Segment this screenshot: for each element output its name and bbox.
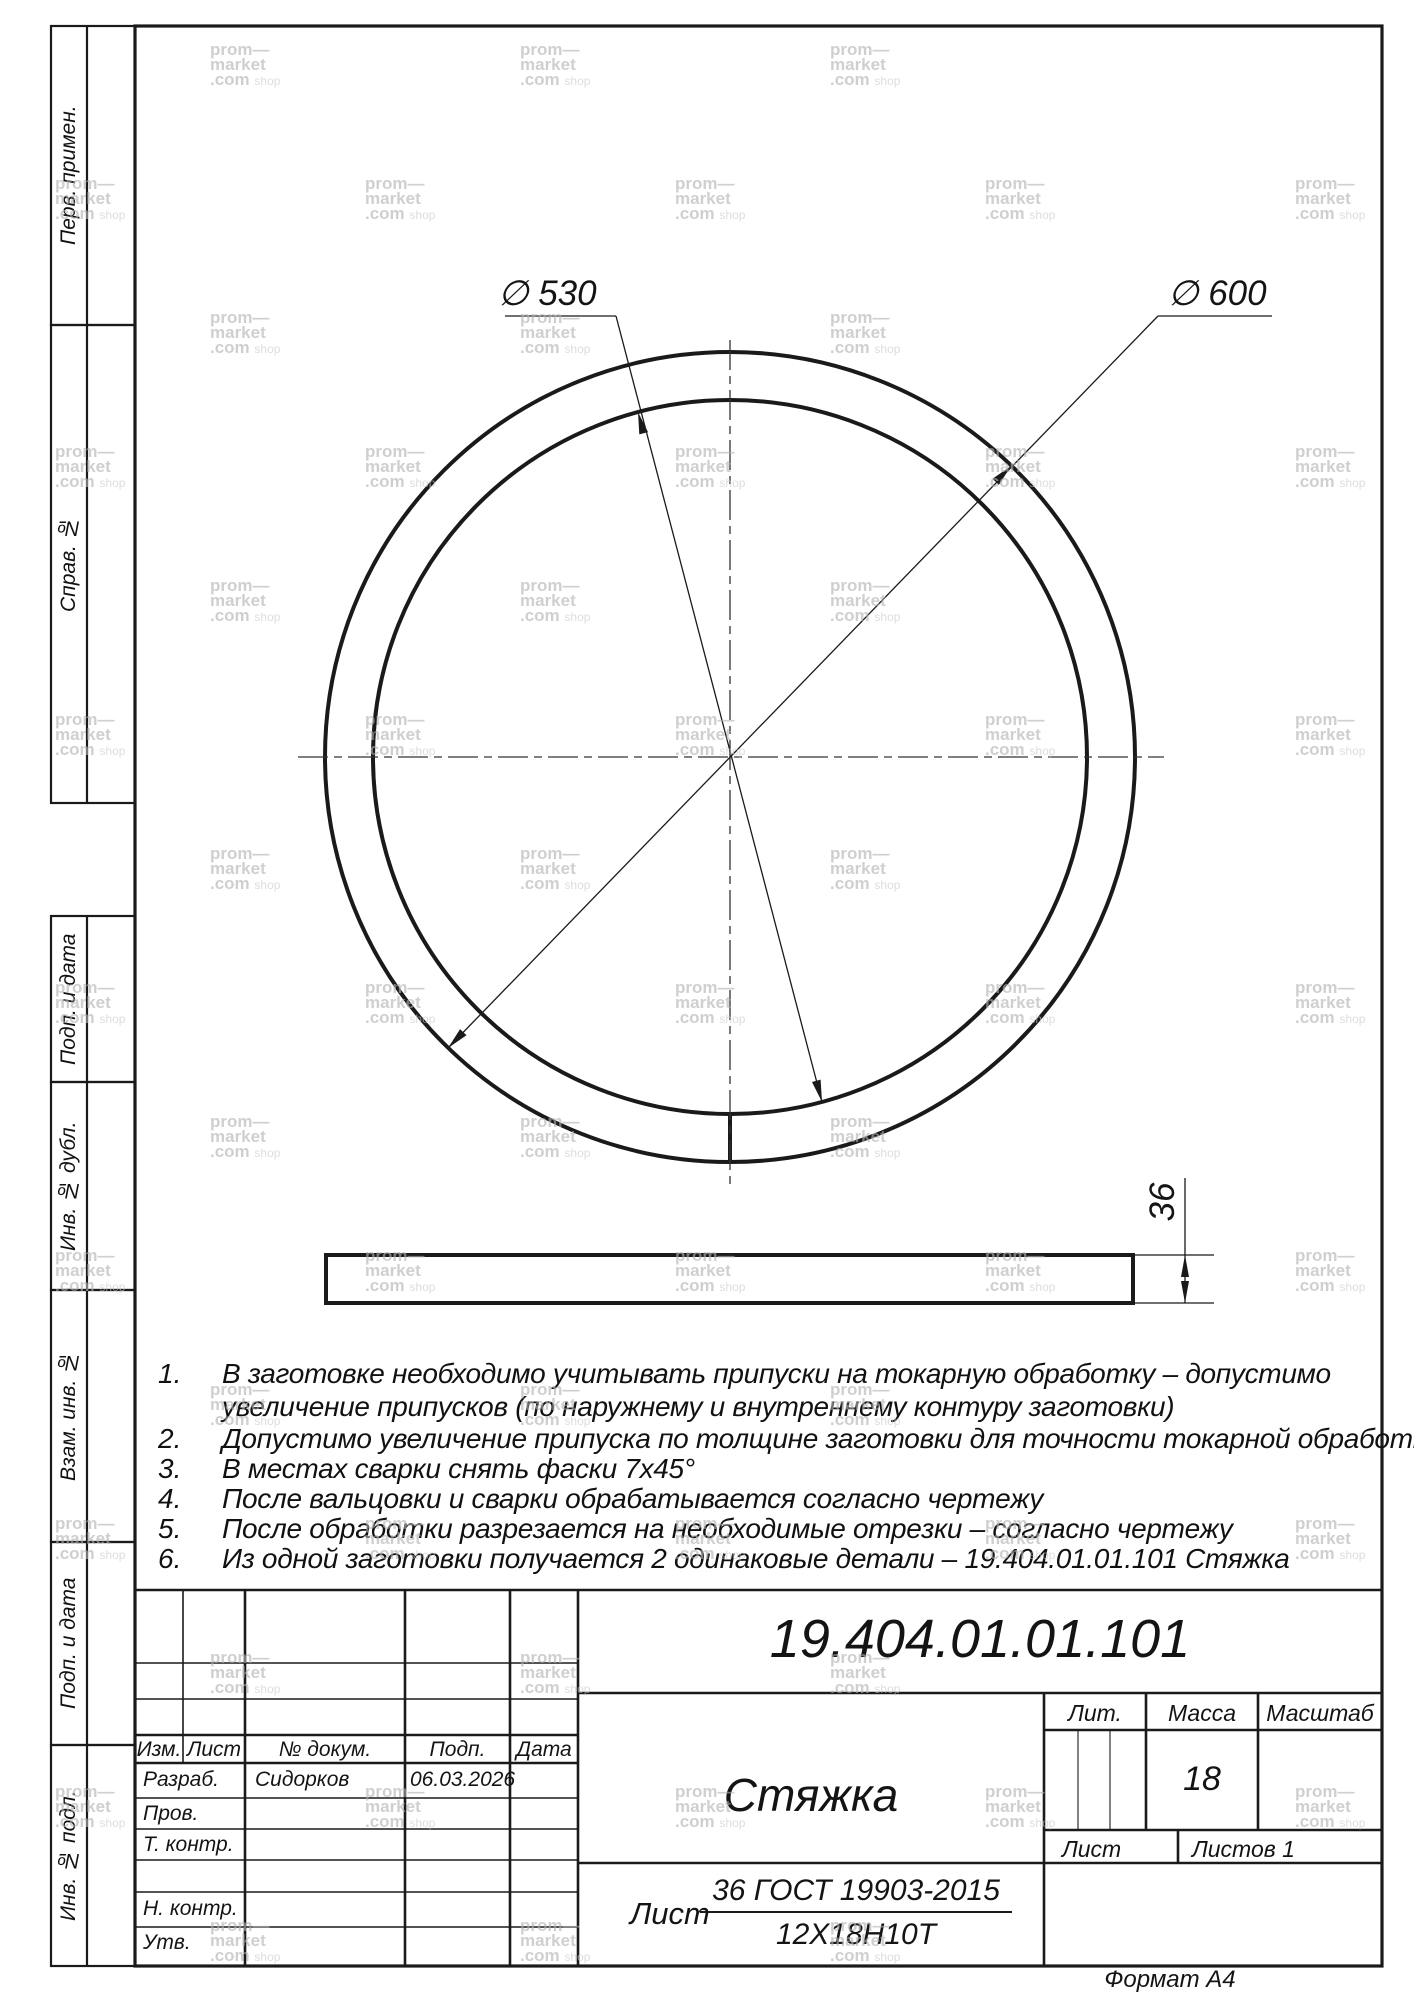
note-line: В заготовке необходимо учитывать припуск… (222, 1358, 1331, 1390)
drawing-sheet: Перв. примен. Справ. № Подп. и дата Инв.… (0, 0, 1414, 2000)
note-line: увеличение припусков (по наружнему и вну… (222, 1391, 1174, 1423)
material-denominator: 12Х18Н10Т (700, 1918, 1012, 1952)
dimension-arrows (448, 412, 1189, 1303)
material-prefix: Лист (630, 1896, 710, 1932)
margin-label-sprav-no: Справ. № (51, 325, 87, 803)
listov-word: Листов (1192, 1836, 1276, 1862)
row-nkontr: Н. контр. (143, 1897, 238, 1921)
note-line: Допустимо увеличение припуска по толщине… (222, 1423, 1414, 1455)
margin-label-vzam-inv: Взам. инв. № (51, 1290, 87, 1542)
note-number: 6. (158, 1543, 208, 1575)
margin-label-inv-dubl: Инв. № дубл. (51, 1082, 87, 1290)
dim-label-36: 36 (1143, 1167, 1183, 1237)
note-number: 5. (158, 1513, 208, 1545)
col-izm: Изм. (135, 1738, 183, 1762)
note-number: 2. (158, 1423, 208, 1455)
row-razrab: Разраб. (143, 1768, 219, 1792)
centerlines (298, 340, 1164, 1186)
note-number: 1. (158, 1358, 208, 1390)
dim-label-530: ∅ 530 (498, 274, 638, 314)
listov-label: Листов 1 (1192, 1836, 1295, 1863)
massa-value: 18 (1146, 1760, 1258, 1799)
massa-label: Масса (1146, 1700, 1258, 1727)
bar-outline (326, 1255, 1133, 1303)
note-line: После обработки разрезается на необходим… (222, 1513, 1233, 1545)
note-line: Из одной заготовки получается 2 одинаков… (222, 1543, 1290, 1575)
lit-label: Лит. (1044, 1700, 1146, 1727)
material-numerator: 36 ГОСТ 19903-2015 (700, 1874, 1012, 1908)
dim-label-600: ∅ 600 (1168, 274, 1308, 314)
margin-label-podp-data-2: Подп. и дата (51, 1542, 87, 1745)
sheet-frame (135, 26, 1382, 1966)
dim-530 (505, 316, 822, 1102)
margin-label-podp-data-1: Подп. и дата (51, 916, 87, 1082)
doc-number: 19.404.01.01.101 (578, 1608, 1382, 1670)
margin-label-inv-podl: Инв. № подл. (51, 1745, 87, 1966)
note-line: После вальцовки и сварки обрабатывается … (222, 1483, 1043, 1515)
note-line: В местах сварки снять фаски 7х45° (222, 1453, 695, 1485)
razrab-date: 06.03.2026 (410, 1768, 515, 1792)
col-list: Лист (183, 1738, 245, 1762)
list-label: Лист (1062, 1836, 1121, 1863)
row-tkontr: Т. контр. (143, 1833, 234, 1857)
bar-side-view (326, 1255, 1133, 1303)
listov-value: 1 (1282, 1836, 1295, 1862)
row-utv: Утв. (143, 1931, 191, 1955)
col-podp: Подп. (405, 1738, 510, 1762)
col-data: Дата (510, 1738, 578, 1762)
col-dokum: № докум. (245, 1738, 405, 1762)
row-prov: Пров. (143, 1802, 198, 1826)
note-number: 4. (158, 1483, 208, 1515)
part-name: Стяжка (578, 1768, 1044, 1822)
masshtab-label: Масштаб (1258, 1700, 1382, 1727)
margin-label-perv-primen: Перв. примен. (51, 26, 87, 325)
razrab-name: Сидорков (255, 1768, 349, 1792)
note-number: 3. (158, 1453, 208, 1485)
format-note: Формат А4 (1080, 1966, 1260, 1994)
